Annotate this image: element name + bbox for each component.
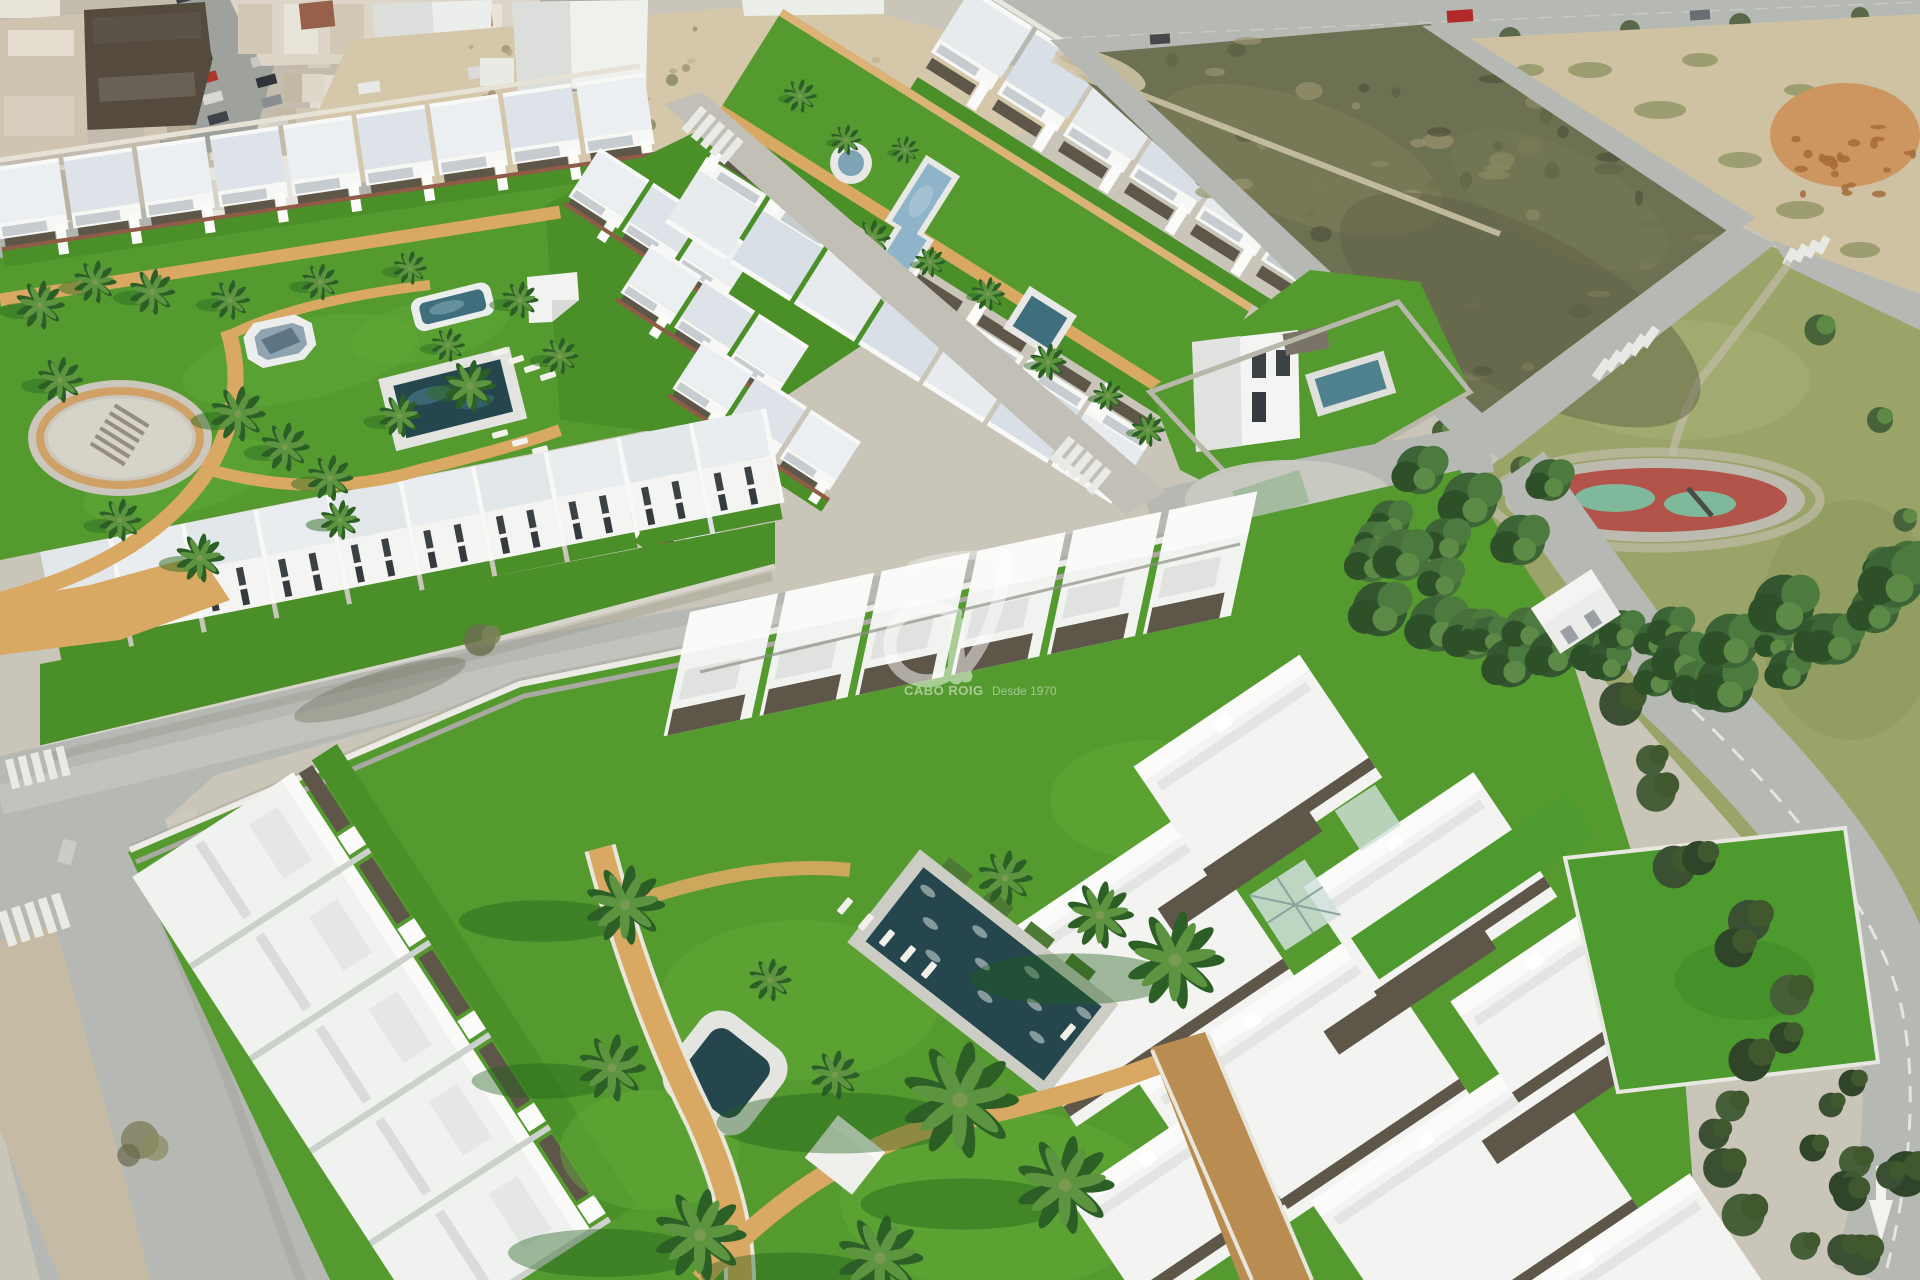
svg-text:Desde 1970: Desde 1970 (992, 684, 1057, 698)
svg-text:CABO ROIG: CABO ROIG (904, 683, 984, 698)
